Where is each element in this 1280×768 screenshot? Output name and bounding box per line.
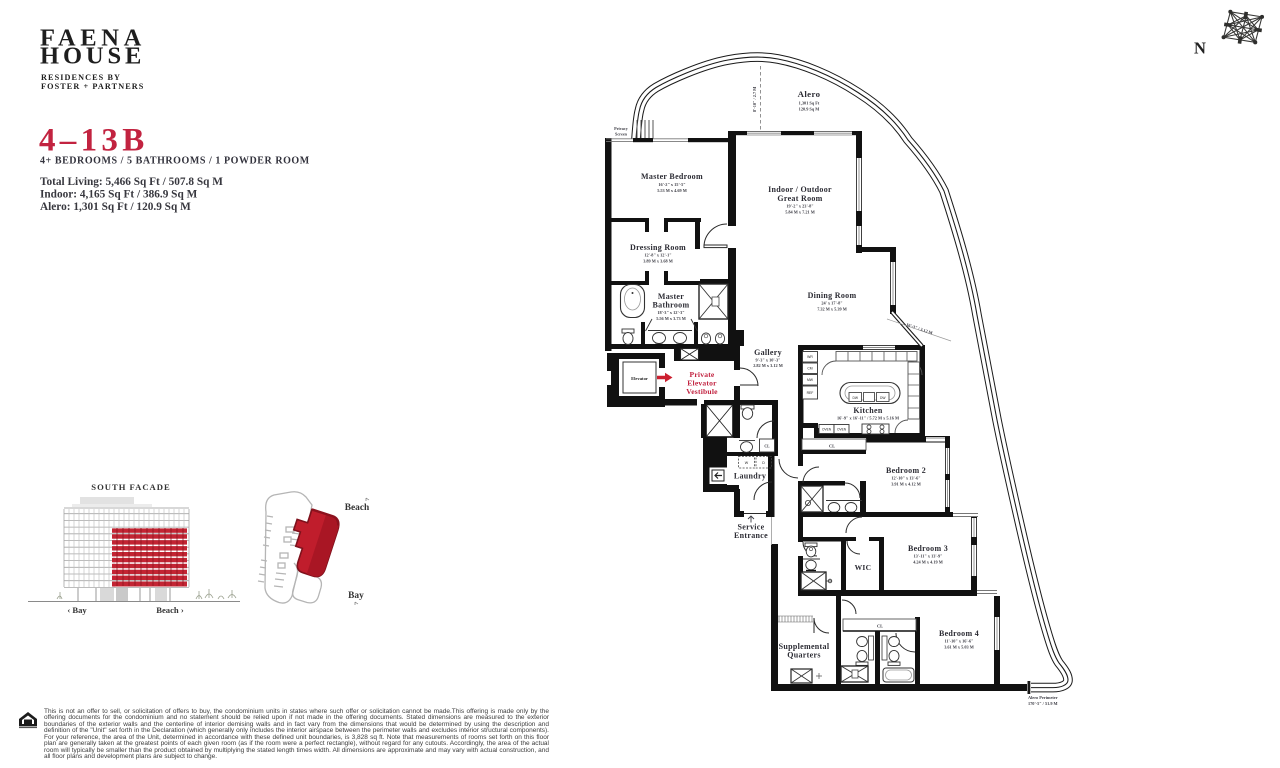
svg-text:4+ BEDROOMS / 5 BATHROOMS / 1: 4+ BEDROOMS / 5 BATHROOMS / 1 POWDER ROO…: [40, 156, 310, 167]
svg-text:24' x 17'-8": 24' x 17'-8": [821, 301, 842, 306]
svg-text:11'-10" x 16'-6": 11'-10" x 16'-6": [944, 639, 973, 644]
svg-text:Alero Perimeter: Alero Perimeter: [1028, 695, 1058, 700]
svg-text:Laundry: Laundry: [734, 472, 766, 481]
svg-text:Bedroom 3: Bedroom 3: [908, 544, 948, 553]
svg-text:REF: REF: [807, 391, 814, 395]
svg-text:Alero: Alero: [798, 89, 821, 99]
svg-text:Entrance: Entrance: [734, 531, 768, 540]
svg-text:CL: CL: [877, 624, 883, 629]
svg-text:13'-11" x 13'-9": 13'-11" x 13'-9": [913, 554, 942, 559]
svg-text:Great Room: Great Room: [777, 194, 822, 203]
svg-text:CL: CL: [764, 445, 770, 449]
svg-text:16'-2" x 15'-5": 16'-2" x 15'-5": [658, 182, 685, 187]
svg-text:5.53 M x 4.69 M: 5.53 M x 4.69 M: [657, 188, 687, 193]
svg-text:‹ Bay: ‹ Bay: [67, 605, 87, 615]
svg-text:Dressing Room: Dressing Room: [630, 243, 686, 252]
svg-text:Vestibule: Vestibule: [686, 387, 718, 396]
svg-text:Alero: 1,301 Sq Ft / 120.9 Sq: Alero: 1,301 Sq Ft / 120.9 Sq M: [40, 201, 191, 213]
svg-text:Privacy: Privacy: [614, 126, 629, 131]
svg-text:8'-10" / 2.7 M: 8'-10" / 2.7 M: [752, 87, 757, 112]
svg-text:18'-3" x 12'-3": 18'-3" x 12'-3": [657, 310, 684, 315]
svg-text:MW: MW: [807, 378, 814, 382]
svg-text:Elevator: Elevator: [631, 376, 648, 381]
svg-text:Bedroom 4: Bedroom 4: [939, 629, 979, 638]
svg-text:Screen: Screen: [615, 132, 628, 137]
svg-text:N: N: [1194, 39, 1206, 58]
svg-text:5.56 M x 3.73 M: 5.56 M x 3.73 M: [656, 316, 686, 321]
svg-text:3.61 M x 5.03 M: 3.61 M x 5.03 M: [944, 645, 974, 650]
svg-text:D: D: [762, 461, 765, 465]
svg-text:DW: DW: [880, 396, 886, 400]
svg-text:3.91 M x 4.12 M: 3.91 M x 4.12 M: [891, 482, 921, 487]
svg-text:4–13B: 4–13B: [39, 123, 149, 159]
svg-text:Total Living: 5,466 Sq Ft / 50: Total Living: 5,466 Sq Ft / 507.8 Sq M: [40, 176, 223, 188]
svg-text:CM: CM: [807, 367, 812, 371]
svg-text:120.9 Sq M: 120.9 Sq M: [799, 107, 820, 112]
svg-text:5.84 M x 7.21 M: 5.84 M x 7.21 M: [785, 210, 815, 215]
svg-text:OVEN: OVEN: [822, 428, 832, 432]
svg-text:3.89 M x 3.68 M: 3.89 M x 3.68 M: [643, 259, 673, 264]
svg-text:12'-10" x 13'-6": 12'-10" x 13'-6": [891, 476, 920, 481]
svg-text:2.82 M x 3.12 M: 2.82 M x 3.12 M: [753, 363, 783, 368]
svg-text:12'-8" x 12'-1": 12'-8" x 12'-1": [644, 253, 671, 258]
svg-text:Bathroom: Bathroom: [653, 301, 690, 310]
svg-text:Bay: Bay: [348, 591, 364, 601]
svg-text:Beach ›: Beach ›: [156, 605, 184, 615]
svg-text:HOUSE: HOUSE: [40, 43, 145, 70]
svg-text:SOUTH FACADE: SOUTH FACADE: [91, 482, 170, 492]
svg-text:FOSTER + PARTNERS: FOSTER + PARTNERS: [41, 82, 144, 91]
svg-text:1,301 Sq Ft: 1,301 Sq Ft: [799, 101, 820, 106]
svg-text:Bedroom 2: Bedroom 2: [886, 466, 926, 475]
svg-text:Dining Room: Dining Room: [808, 291, 857, 300]
svg-text:4.24 M x 4.19 M: 4.24 M x 4.19 M: [913, 560, 943, 565]
svg-text:Gallery: Gallery: [754, 348, 782, 357]
svg-text:W: W: [745, 461, 749, 465]
svg-text:9'-3" x 10'-3": 9'-3" x 10'-3": [755, 358, 780, 363]
svg-text:DW: DW: [852, 396, 858, 400]
svg-text:170'-5" / 51.9 M: 170'-5" / 51.9 M: [1028, 701, 1058, 706]
svg-text:Master Bedroom: Master Bedroom: [641, 172, 703, 181]
svg-text:19'-2" x 23'-8": 19'-2" x 23'-8": [786, 204, 813, 209]
svg-text:Beach: Beach: [345, 503, 370, 513]
svg-text:Kitchen: Kitchen: [853, 406, 882, 415]
svg-text:Quarters: Quarters: [787, 651, 821, 660]
svg-text:CL: CL: [829, 444, 835, 449]
svg-text:OVEN: OVEN: [837, 428, 847, 432]
svg-text:Indoor: 4,165 Sq Ft / 386.9 Sq: Indoor: 4,165 Sq Ft / 386.9 Sq M: [40, 189, 198, 201]
svg-text:7.32 M x 5.39 M: 7.32 M x 5.39 M: [817, 307, 847, 312]
svg-text:WR: WR: [807, 355, 813, 359]
svg-text:RESIDENCES BY: RESIDENCES BY: [41, 73, 121, 82]
svg-text:WIC: WIC: [855, 563, 872, 572]
svg-text:Indoor / Outdoor: Indoor / Outdoor: [768, 185, 832, 194]
svg-text:16'-9" x 16'-11" / 5.72 M x 5.: 16'-9" x 16'-11" / 5.72 M x 5.16 M: [837, 416, 899, 421]
